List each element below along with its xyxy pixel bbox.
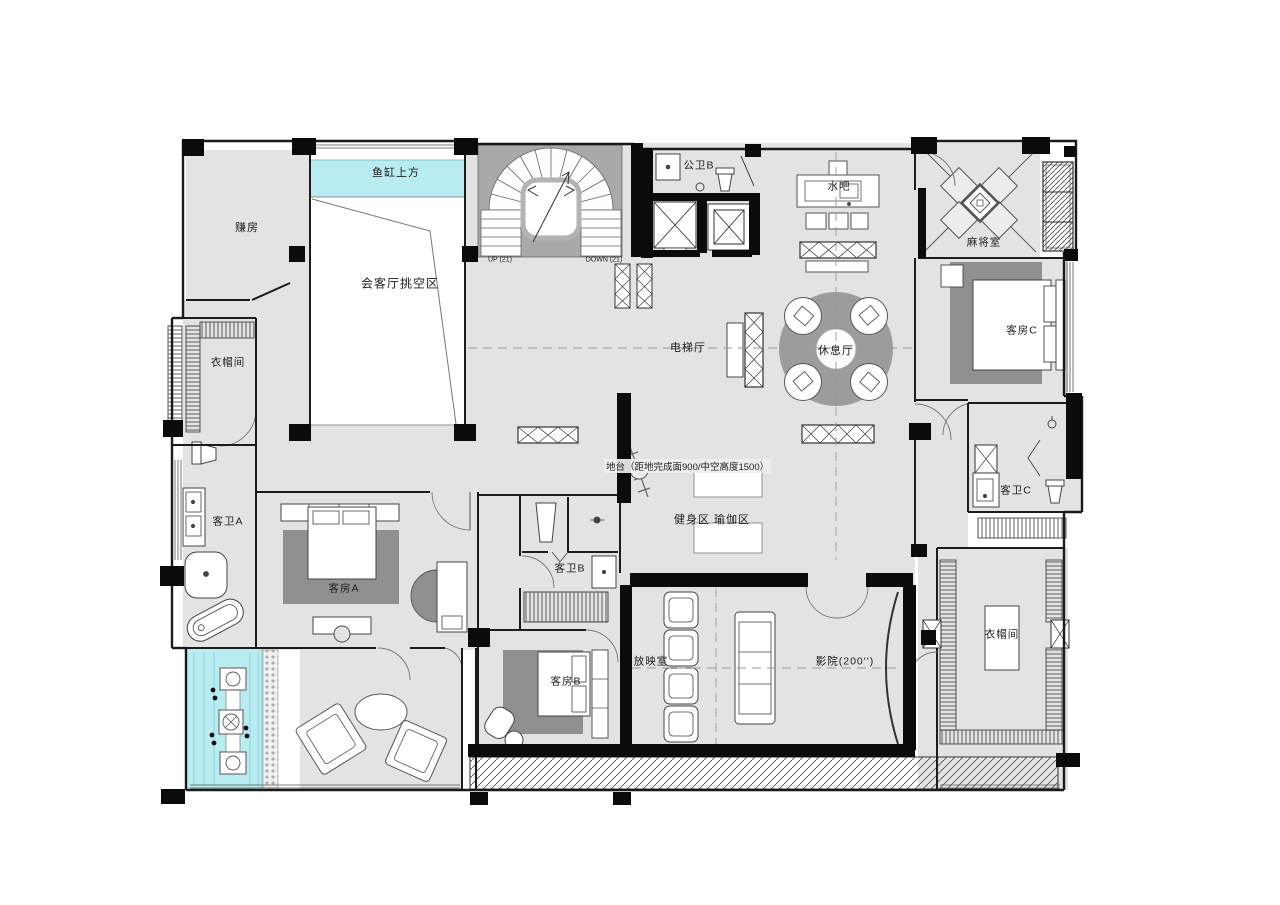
floor-plan-drawing (0, 0, 1280, 905)
room-label-cinema: 影院(200'') (816, 654, 875, 669)
room-label-projection: 放映室 (634, 654, 669, 669)
terrace-hatch-band (470, 757, 1058, 789)
room-label-chamber: 赚房 (235, 219, 259, 235)
room-label-guest-a: 客房A (328, 581, 359, 596)
staircase (478, 145, 622, 257)
room-label-lounge: 休息厅 (818, 342, 854, 358)
room-label-cloakroom-right: 衣帽间 (985, 627, 1020, 642)
stair-up-label: UP (21) (488, 257, 512, 264)
pebble-texture (263, 650, 278, 788)
room-label-water-bar: 水吧 (828, 179, 851, 194)
void-area (310, 197, 465, 425)
wardrobe-strip (978, 518, 1066, 538)
room-label-bath-b: 客卫B (554, 561, 585, 576)
stair-down-label: DOWN (21) (586, 257, 623, 264)
hatched-cabinet (1043, 162, 1073, 251)
water-bar-console (800, 242, 876, 258)
room-label-mahjong: 麻将室 (967, 235, 1002, 250)
room-label-bath-c: 客卫C (1000, 483, 1032, 498)
pool (186, 648, 262, 790)
room-label-elevator-hall: 电梯厅 (670, 339, 706, 355)
room-label-cloakroom-left: 衣帽间 (211, 355, 246, 370)
room-label-fish-tank: 鱼缸上方 (372, 164, 420, 180)
room-label-void: 会客厅挑空区 (361, 275, 439, 292)
floor-plan: 鱼缸上方 赚房 会客厅挑空区 衣帽间 UP (21) DOWN (21) 公卫B… (0, 0, 1280, 905)
room-label-guest-b: 客房B (550, 674, 581, 689)
guest-b-wardrobe (524, 592, 608, 622)
room-label-guest-c: 客房C (1006, 323, 1038, 338)
room-label-public-bath-b: 公卫B (683, 158, 714, 173)
room-label-gym: 健身区 瑜伽区 (674, 511, 750, 527)
platform-note: 地台（距地完成面900/中空高度1500） (604, 459, 771, 473)
room-label-bath-a: 客卫A (212, 514, 243, 529)
guest-room-c-furniture (941, 262, 1065, 384)
